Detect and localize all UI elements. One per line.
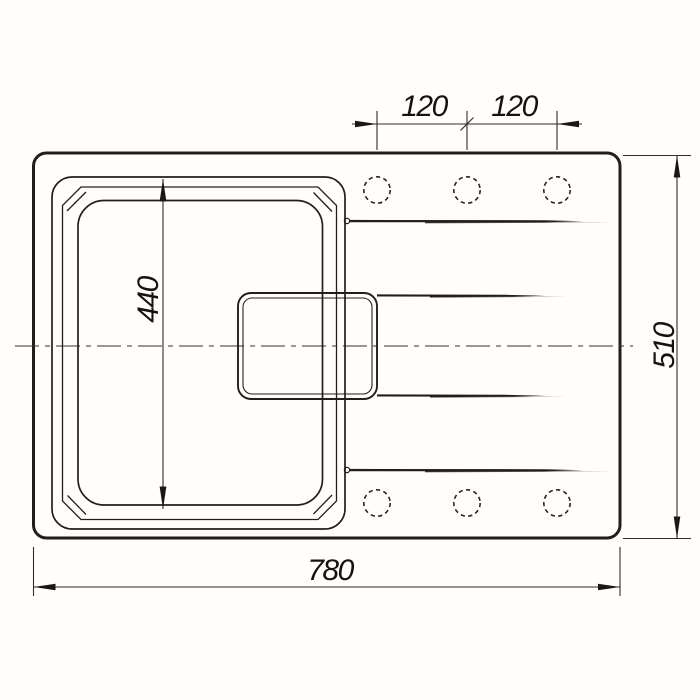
groove-taper <box>349 469 583 471</box>
dimension-overall-length: 780 <box>34 547 621 596</box>
drainboard-groove-2 <box>377 294 567 297</box>
groove-taper <box>377 394 545 396</box>
groove-taper <box>349 220 583 222</box>
tap-hole-bottom-right <box>544 490 570 516</box>
dimension-overall-width: 510 <box>623 156 691 539</box>
dimension-arrow <box>674 517 681 539</box>
dimension-arrow <box>557 121 579 127</box>
drawing-svg: 120 120 510 780 440 <box>0 0 700 700</box>
tap-hole-top-left <box>364 177 390 203</box>
sink-technical-drawing: 120 120 510 780 440 <box>0 0 700 700</box>
bowl-corner-chamfer-bl <box>68 496 87 515</box>
bowl <box>52 177 345 529</box>
tap-hole-bottom-center <box>454 490 480 516</box>
dimension-arrow <box>598 584 620 590</box>
dimension-arrow <box>160 179 167 202</box>
dimension-label: 120 <box>401 90 448 123</box>
drainboard-groove-3 <box>377 394 567 397</box>
sink-body-outline <box>34 153 621 538</box>
bowl-outer-rim <box>52 177 345 529</box>
bowl-corner-chamfer-tl <box>67 192 86 211</box>
tap-hole-top-center <box>454 177 480 203</box>
tap-hole-top-right <box>544 177 570 203</box>
bowl-inner-rim <box>78 201 323 506</box>
bowl-middle-rim <box>63 187 337 520</box>
drainboard-groove-4 <box>344 467 614 472</box>
bowl-corner-chamfer-br <box>314 495 333 514</box>
dimension-label: 510 <box>648 321 681 368</box>
dimension-arrow <box>34 584 56 590</box>
dimension-bowl-length: 440 <box>132 179 166 509</box>
groove-taper <box>377 294 545 296</box>
dimension-hole-spacing: 120 120 <box>352 90 582 150</box>
tap-hole-bottom-left <box>364 490 390 516</box>
dimension-label: 440 <box>132 275 165 322</box>
dimension-label: 120 <box>491 90 538 123</box>
dimension-arrow <box>674 156 681 178</box>
dimension-arrow <box>355 121 377 127</box>
drainboard-groove-1 <box>344 218 614 223</box>
dimension-label: 780 <box>307 554 354 587</box>
